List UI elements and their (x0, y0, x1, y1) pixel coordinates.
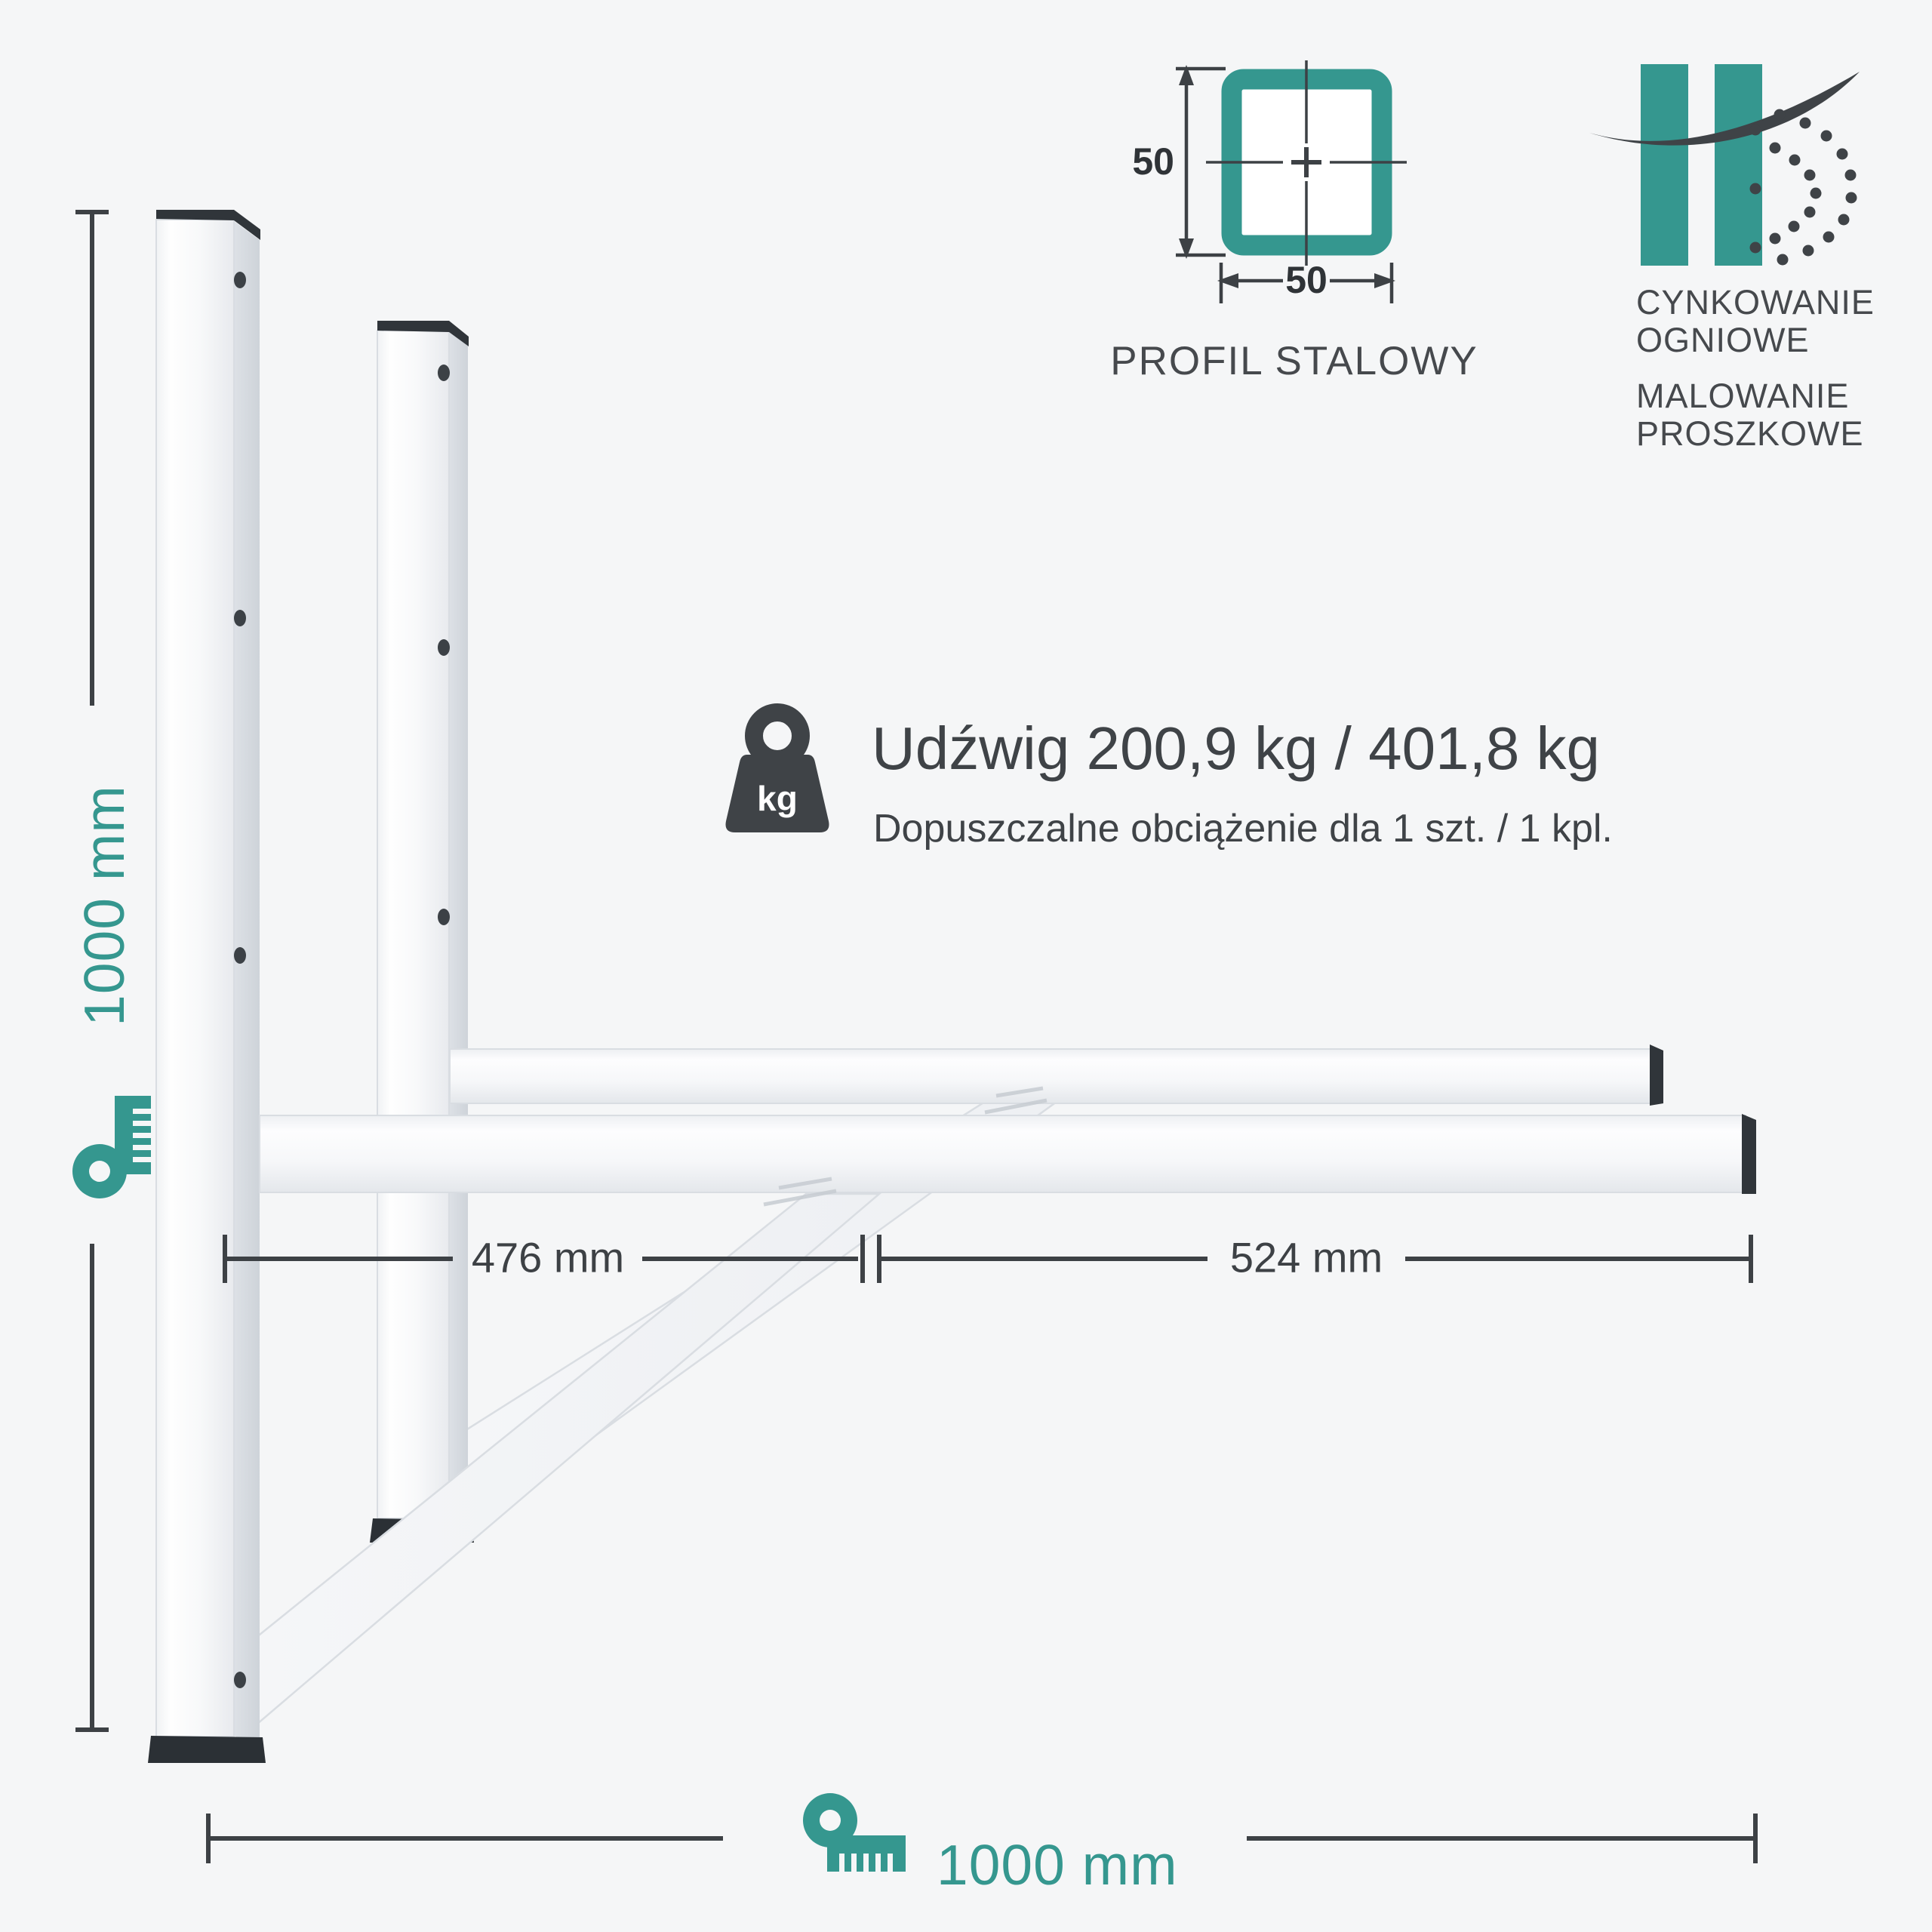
load-capacity-title: Udźwig 200,9 kg / 401,8 kg (872, 718, 1600, 779)
rear-depth-dimension-label: 476 mm (472, 1233, 624, 1282)
profile-caption: PROFIL STALOWY (1110, 338, 1478, 384)
rear-wall-post (370, 321, 474, 1543)
galvanizing-caption-line2: OGNIOWE (1636, 321, 1875, 359)
product-infographic: 1000 mm 1000 mm 476 mm 524 mm kg Udźwig … (0, 0, 1932, 1932)
tape-measure-icon-left (72, 1096, 151, 1198)
profile-height-label: 50 (1132, 140, 1174, 183)
total-width-dimension-label: 1000 mm (937, 1832, 1178, 1897)
galvanizing-caption-line1: CYNKOWANIE (1636, 284, 1875, 321)
height-dimension-label: 1000 mm (72, 785, 137, 1026)
rear-support-arm (450, 1044, 1663, 1106)
profile-width-label: 50 (1285, 258, 1327, 302)
front-depth-dimension-label: 524 mm (1230, 1233, 1383, 1282)
tape-measure-icon (803, 1793, 906, 1872)
powder-coating-caption: MALOWANIE PROSZKOWE (1636, 377, 1864, 454)
front-wall-post (148, 210, 266, 1763)
galvanizing-caption: CYNKOWANIE OGNIOWE (1636, 284, 1875, 360)
front-support-arm (260, 1114, 1756, 1194)
powder-coating-caption-line1: MALOWANIE (1636, 377, 1864, 415)
load-capacity-subtitle: Dopuszczalne obciążenie dla 1 szt. / 1 k… (873, 809, 1613, 848)
powder-coating-caption-line2: PROSZKOWE (1636, 415, 1864, 453)
kg-badge-label: kg (757, 778, 798, 819)
galvanizing-spray-icon (1589, 64, 1860, 266)
